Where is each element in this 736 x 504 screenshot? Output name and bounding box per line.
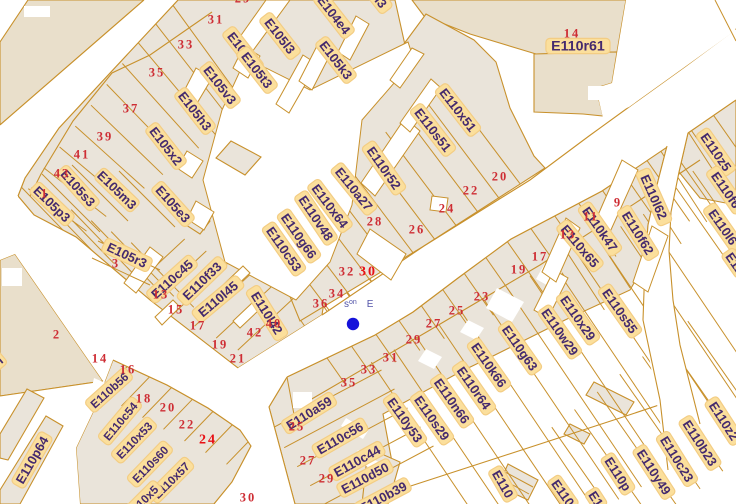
svg-text:15: 15 bbox=[168, 303, 185, 317]
svg-text:19: 19 bbox=[511, 263, 528, 277]
svg-text:29: 29 bbox=[406, 333, 423, 347]
svg-text:E110r61: E110r61 bbox=[551, 39, 605, 55]
svg-text:25: 25 bbox=[289, 420, 306, 434]
svg-text:41: 41 bbox=[74, 148, 91, 162]
svg-text:19: 19 bbox=[212, 338, 229, 352]
svg-text:21: 21 bbox=[230, 352, 247, 366]
svg-text:24: 24 bbox=[199, 433, 217, 448]
svg-text:22: 22 bbox=[179, 418, 196, 432]
svg-text:29: 29 bbox=[235, 0, 252, 6]
svg-text:13: 13 bbox=[153, 288, 170, 302]
svg-text:39: 39 bbox=[97, 130, 114, 144]
svg-text:43: 43 bbox=[54, 167, 71, 181]
svg-text:28: 28 bbox=[367, 215, 384, 229]
svg-text:9: 9 bbox=[614, 196, 622, 210]
svg-text:14: 14 bbox=[564, 27, 581, 41]
svg-text:30: 30 bbox=[359, 265, 377, 280]
svg-text:27: 27 bbox=[300, 454, 317, 468]
svg-text:17: 17 bbox=[190, 319, 207, 333]
svg-text:32: 32 bbox=[339, 265, 356, 279]
svg-text:20: 20 bbox=[160, 401, 177, 415]
svg-text:36: 36 bbox=[313, 297, 330, 311]
svg-text:24: 24 bbox=[439, 202, 456, 216]
svg-text:33: 33 bbox=[361, 363, 378, 377]
svg-text:29: 29 bbox=[319, 472, 336, 486]
svg-text:26: 26 bbox=[409, 223, 426, 237]
svg-text:35: 35 bbox=[341, 376, 358, 390]
svg-text:34: 34 bbox=[329, 287, 346, 301]
svg-text:33: 33 bbox=[178, 38, 195, 52]
svg-text:31: 31 bbox=[208, 13, 225, 27]
svg-text:1: 1 bbox=[41, 187, 49, 201]
svg-text:13: 13 bbox=[560, 228, 577, 242]
svg-text:30: 30 bbox=[240, 491, 257, 504]
svg-text:27: 27 bbox=[426, 317, 443, 331]
svg-text:42: 42 bbox=[247, 326, 264, 340]
svg-text:2: 2 bbox=[53, 328, 61, 342]
svg-text:16: 16 bbox=[120, 363, 137, 377]
svg-text:25: 25 bbox=[449, 304, 466, 318]
svg-text:20: 20 bbox=[492, 170, 509, 184]
svg-text:22: 22 bbox=[463, 184, 480, 198]
svg-text:3: 3 bbox=[112, 257, 120, 271]
svg-text:14: 14 bbox=[92, 352, 109, 366]
svg-text:31: 31 bbox=[383, 351, 400, 365]
svg-text:40: 40 bbox=[266, 317, 283, 331]
svg-text:37: 37 bbox=[123, 102, 140, 116]
svg-text:17: 17 bbox=[532, 250, 549, 264]
svg-text:18: 18 bbox=[136, 392, 153, 406]
svg-text:23: 23 bbox=[474, 290, 491, 304]
svg-text:11: 11 bbox=[583, 210, 599, 224]
svg-text:35: 35 bbox=[149, 66, 166, 80]
